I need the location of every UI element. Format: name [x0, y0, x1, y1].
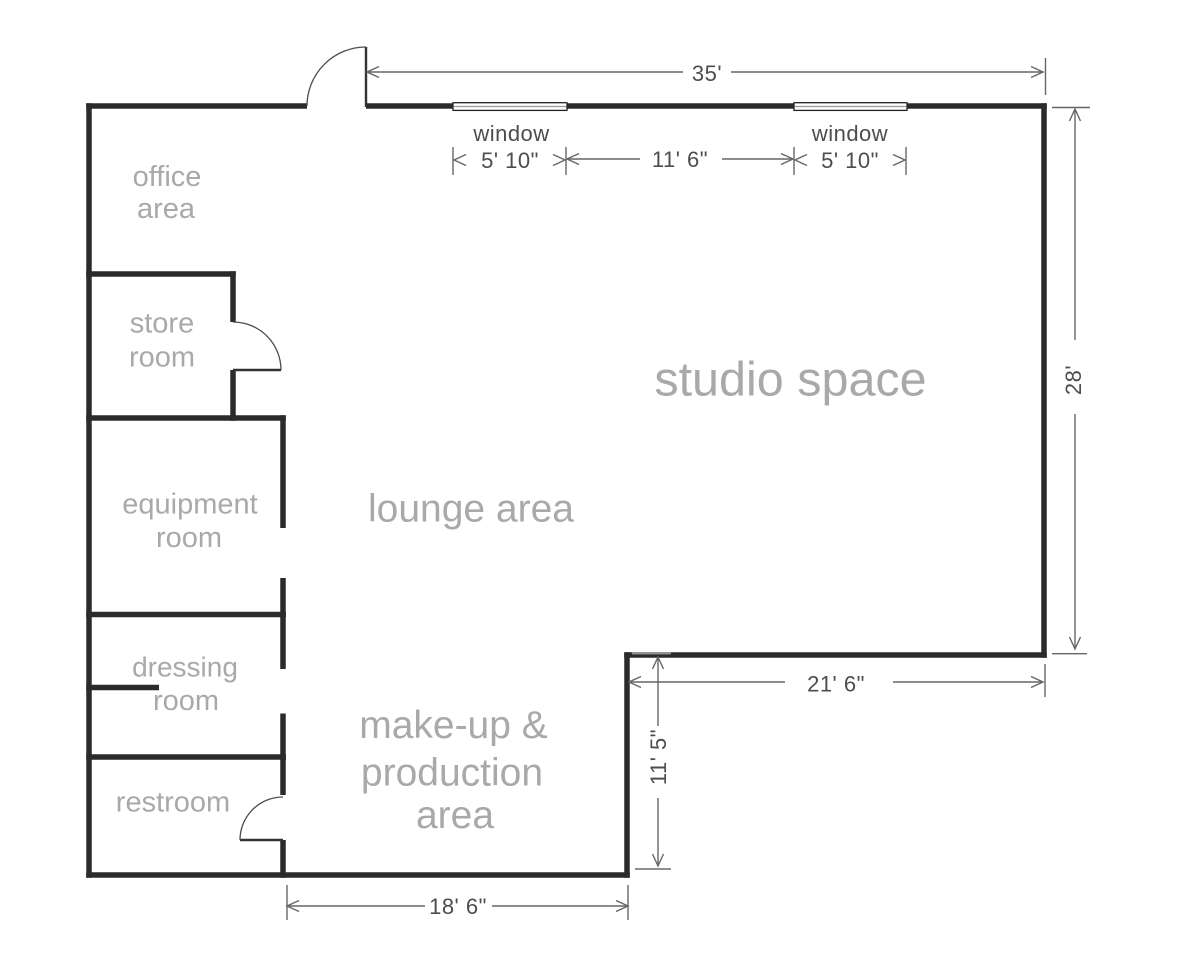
svg-text:room: room: [129, 342, 195, 374]
svg-text:make-up &: make-up &: [359, 704, 548, 747]
svg-text:area: area: [416, 794, 494, 837]
svg-text:21' 6": 21' 6": [807, 672, 865, 697]
svg-text:5' 10": 5' 10": [481, 148, 539, 173]
svg-text:area: area: [137, 193, 196, 225]
svg-text:store: store: [130, 308, 194, 340]
svg-text:11' 5": 11' 5": [646, 729, 671, 785]
svg-text:room: room: [153, 685, 219, 717]
svg-text:11' 6": 11' 6": [652, 147, 708, 172]
svg-text:18' 6": 18' 6": [429, 894, 487, 919]
svg-text:window: window: [472, 121, 549, 146]
svg-text:5' 10": 5' 10": [821, 148, 879, 173]
svg-text:equipment: equipment: [122, 489, 257, 521]
svg-text:production: production: [361, 752, 543, 795]
svg-text:dressing: dressing: [132, 652, 238, 683]
svg-text:room: room: [156, 522, 222, 554]
svg-text:35': 35': [692, 61, 722, 86]
svg-text:lounge area: lounge area: [368, 487, 574, 530]
svg-text:studio space: studio space: [654, 353, 926, 407]
svg-text:window: window: [811, 121, 888, 146]
svg-text:28': 28': [1061, 365, 1086, 395]
svg-text:office: office: [133, 161, 202, 193]
svg-text:restroom: restroom: [116, 787, 230, 819]
